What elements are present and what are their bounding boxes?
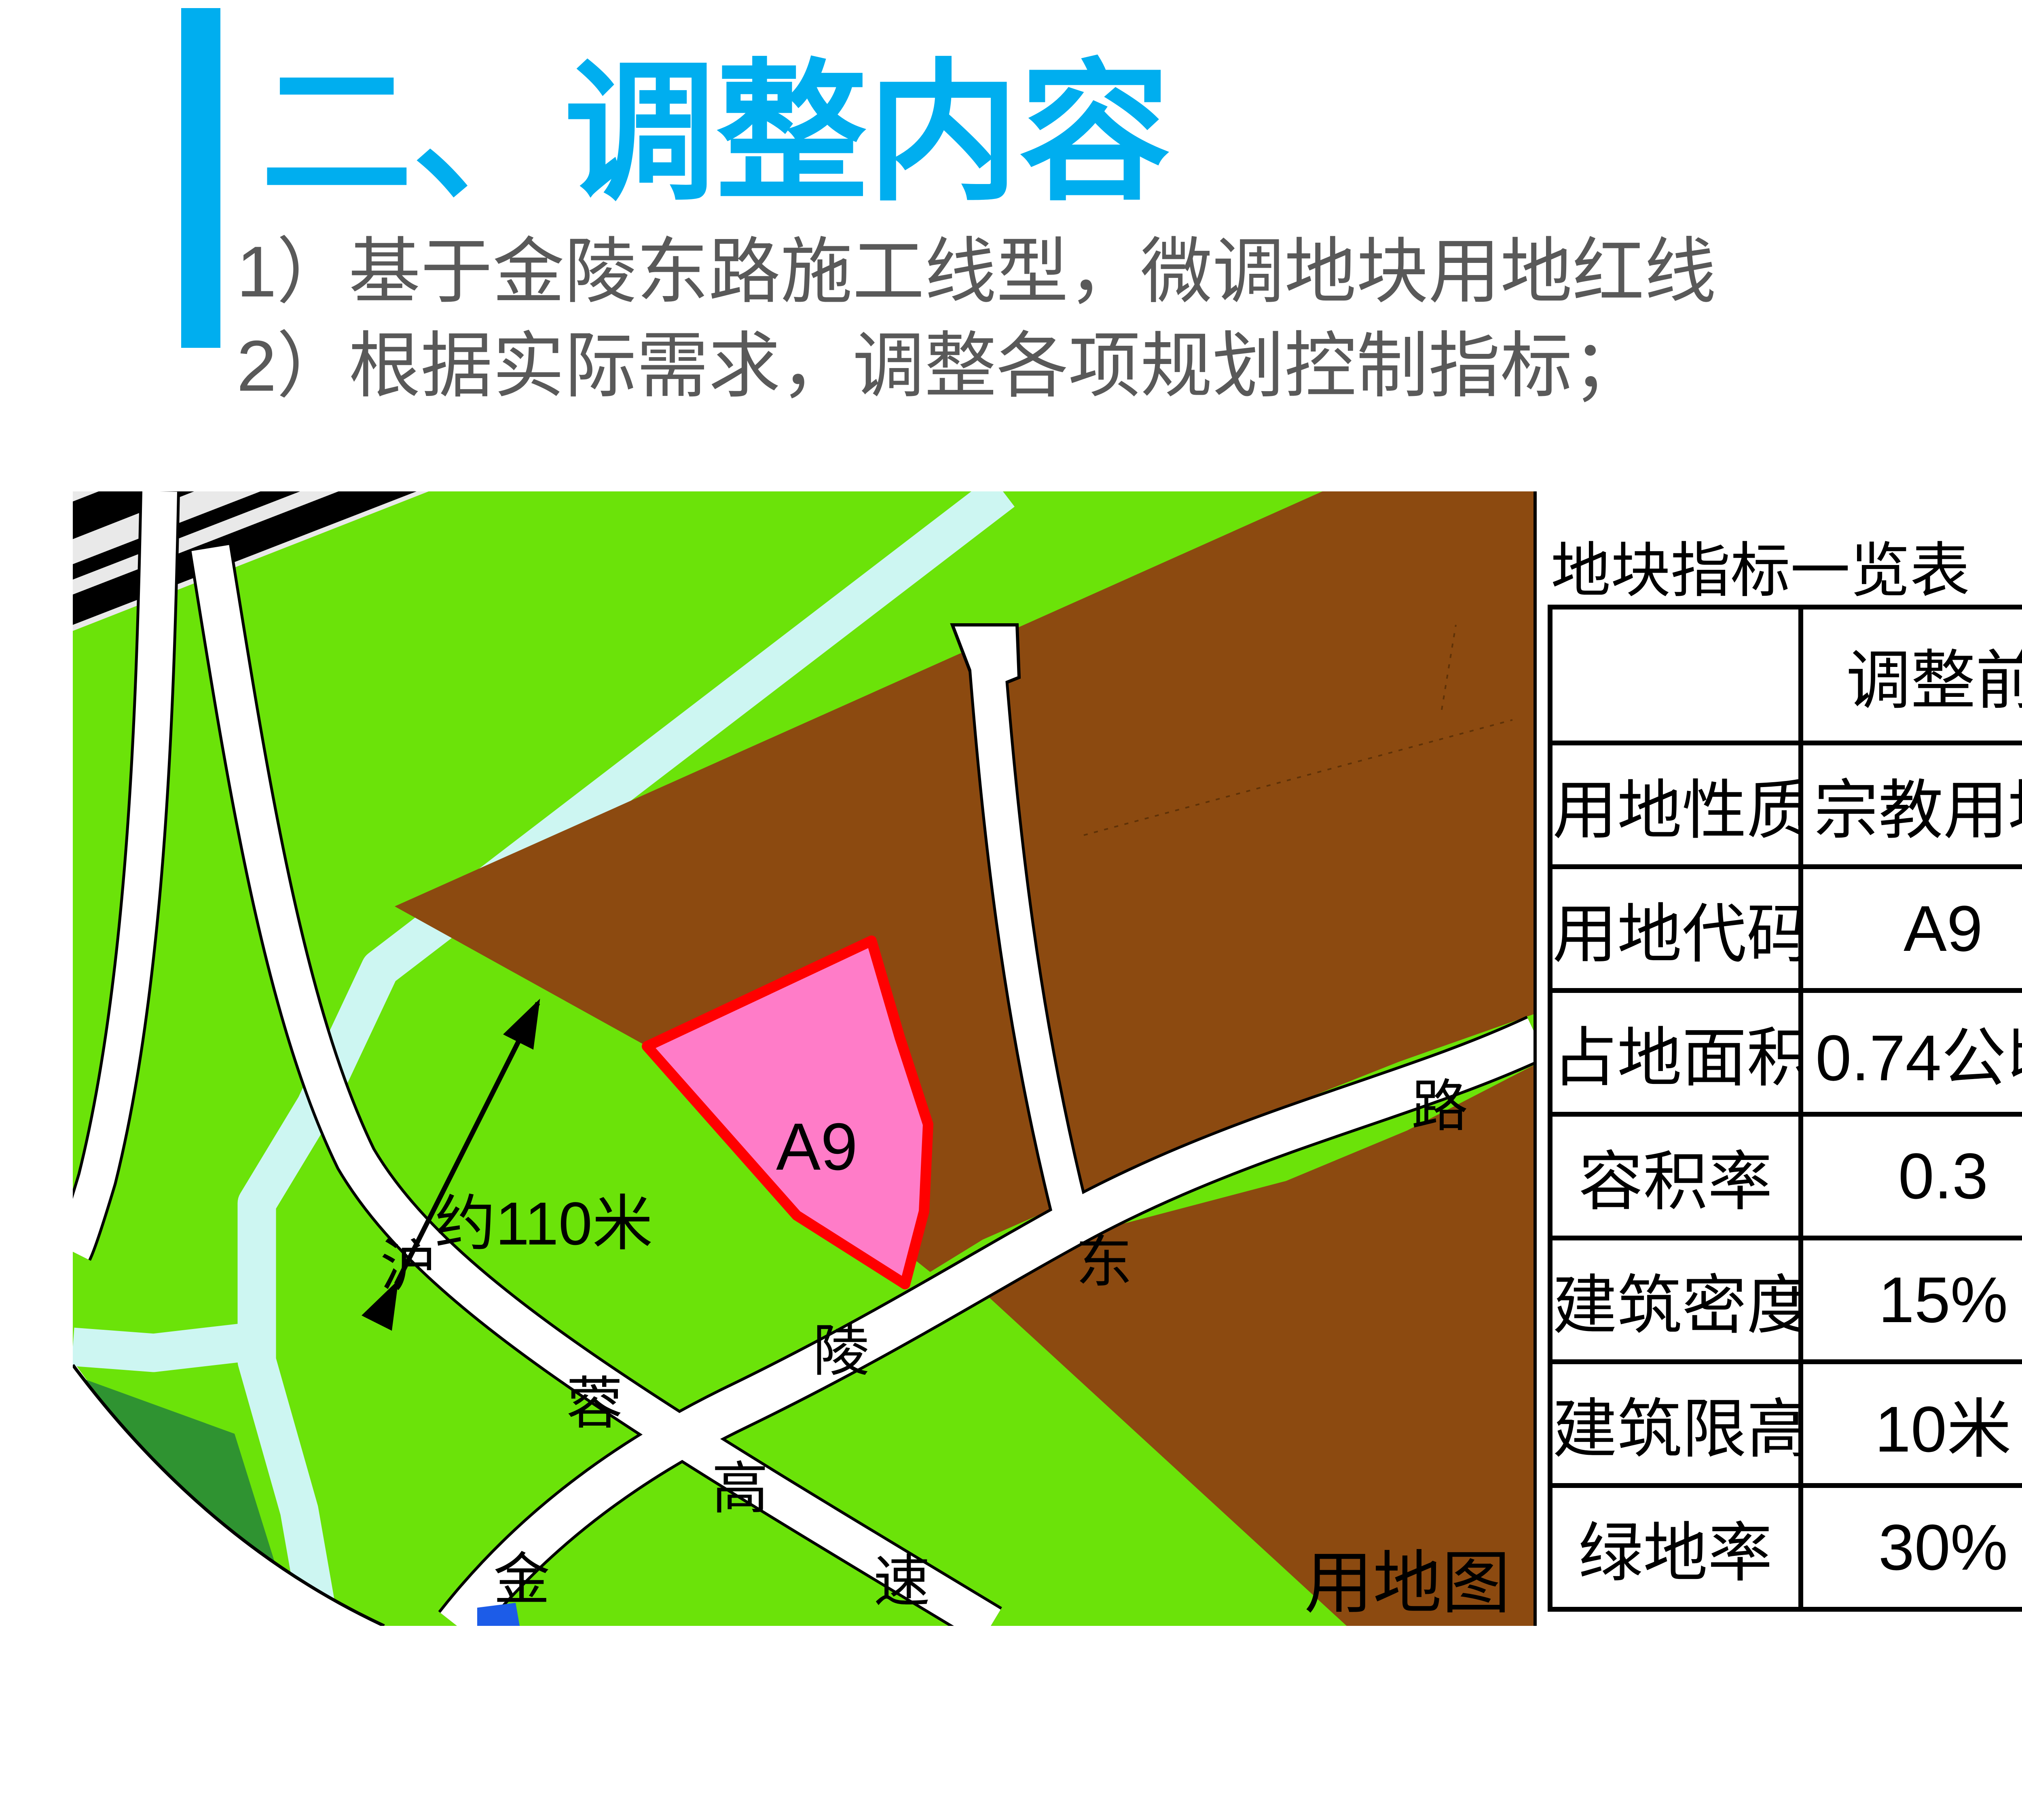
table-row: 建筑密度 15% 25% bbox=[1550, 1238, 2022, 1362]
table-row: 用地性质 宗教用地 宗教用地 bbox=[1550, 743, 2022, 867]
value-before: 15% bbox=[1801, 1238, 2022, 1362]
row-label: 绿地率 bbox=[1550, 1486, 1801, 1609]
map-caption: 用地图 bbox=[1304, 1545, 1510, 1622]
row-label: 占地面积 bbox=[1550, 990, 1801, 1114]
land-use-map-canvas: 约110米 A9 沪 蓉 高 速 金 陵 东 路 用地图 bbox=[73, 491, 1537, 1626]
value-before: 0.74公顷 bbox=[1801, 990, 2022, 1114]
header-cell-before: 调整前 bbox=[1801, 607, 2022, 743]
land-use-map: 约110米 A9 沪 蓉 高 速 金 陵 东 路 用地图 bbox=[73, 491, 1537, 1626]
slide: 二、调整内容 1）基于金陵东路施工线型，微调地块用地红线 2）根据实际需求，调整… bbox=[0, 0, 2022, 1820]
table-row: 用地代码 A9 A9 bbox=[1550, 867, 2022, 990]
accent-bar bbox=[181, 8, 220, 348]
row-label: 用地代码 bbox=[1550, 867, 1801, 990]
table-row: 容积率 0.3 0.4 bbox=[1550, 1114, 2022, 1238]
bullet-item: 1）基于金陵东路施工线型，微调地块用地红线 bbox=[237, 224, 2016, 319]
page-title: 二、调整内容 bbox=[261, 38, 1717, 229]
road-label-jin: 金 bbox=[493, 1548, 550, 1611]
value-before: 宗教用地 bbox=[1801, 743, 2022, 867]
value-before: 10米 bbox=[1801, 1362, 2022, 1486]
table-row: 绿地率 30% 25% bbox=[1550, 1486, 2022, 1609]
value-before: 30% bbox=[1801, 1486, 2022, 1609]
bullet-list: 1）基于金陵东路施工线型，微调地块用地红线 2）根据实际需求，调整各项规划控制指… bbox=[237, 224, 2016, 413]
row-label: 用地性质 bbox=[1550, 743, 1801, 867]
value-before: 0.3 bbox=[1801, 1114, 2022, 1238]
row-label: 容积率 bbox=[1550, 1114, 1801, 1238]
table-row: 占地面积 0.74公顷 0.73公顷 bbox=[1550, 990, 2022, 1114]
road-label-rong: 蓉 bbox=[566, 1372, 623, 1435]
road-label-lu: 路 bbox=[1411, 1075, 1468, 1138]
road-label-su: 速 bbox=[874, 1550, 930, 1613]
road-label-hu: 沪 bbox=[380, 1234, 437, 1298]
table-header-row: 调整前 调整后 bbox=[1550, 607, 2022, 743]
map-right-border bbox=[1533, 491, 1537, 1626]
value-before: A9 bbox=[1801, 867, 2022, 990]
a9-parcel-label: A9 bbox=[776, 1109, 858, 1184]
row-label: 建筑限高 bbox=[1550, 1362, 1801, 1486]
row-label: 建筑密度 bbox=[1550, 1238, 1801, 1362]
table-row: 建筑限高 10米 15米 bbox=[1550, 1362, 2022, 1486]
road-label-dong: 东 bbox=[1076, 1230, 1132, 1294]
bullet-item: 2）根据实际需求，调整各项规划控制指标； bbox=[237, 319, 2016, 413]
table-title: 地块指标一览表 bbox=[1551, 522, 1970, 609]
dimension-label: 约110米 bbox=[435, 1189, 653, 1257]
river-branch bbox=[73, 1341, 259, 1353]
indicator-table: 调整前 调整后 用地性质 宗教用地 宗教用地 用地代码 A9 A9 占地面积 0… bbox=[1548, 605, 2022, 1612]
road-label-ling: 陵 bbox=[813, 1319, 869, 1383]
road-label-gao: 高 bbox=[712, 1457, 768, 1520]
header-cell-blank bbox=[1550, 607, 1801, 743]
